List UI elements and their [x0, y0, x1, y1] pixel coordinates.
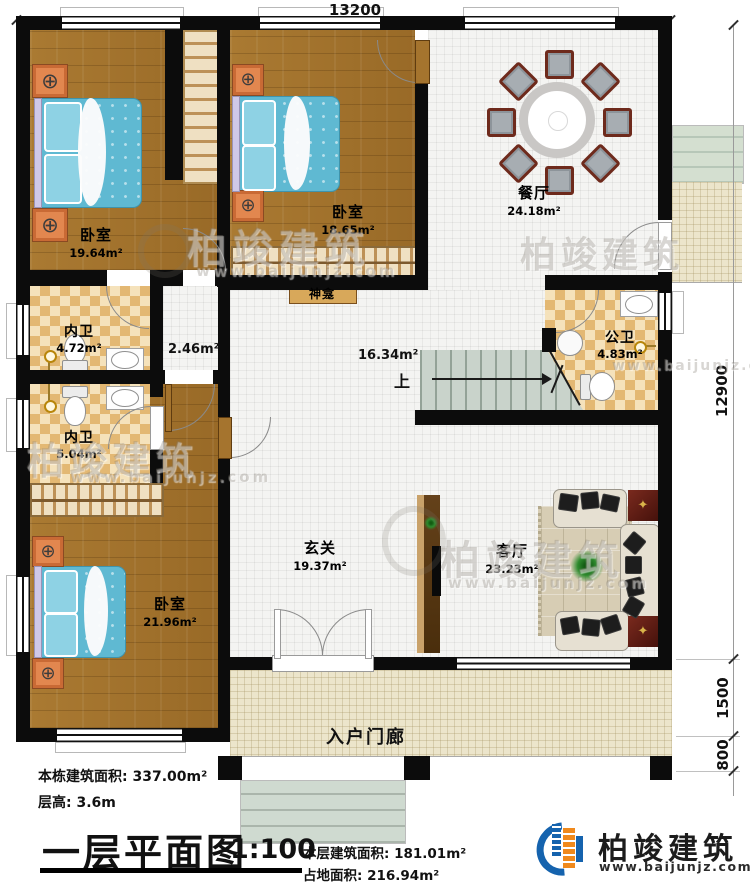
- sink-icon: [625, 295, 653, 314]
- stat-building-area: 本栋建筑面积: 337.00m²: [38, 766, 207, 786]
- corridor-floor: [163, 286, 218, 370]
- sofa-pillow: [600, 493, 621, 512]
- brand-logo-building-icon: [563, 828, 575, 868]
- porch-pillar: [650, 756, 672, 780]
- window: [57, 728, 182, 742]
- wall: [415, 82, 428, 290]
- brand-website: www.baijunjz.com: [599, 859, 750, 874]
- brand-logo-building-icon: [576, 836, 583, 862]
- sofa-pillow: [580, 491, 600, 510]
- wall: [630, 657, 672, 670]
- dimension-right-porch: 1500: [714, 679, 732, 719]
- bed-headboard: [34, 98, 42, 208]
- window-sill: [672, 291, 684, 334]
- dimension-right-main: 12900: [713, 361, 731, 421]
- nightstand: ⊕: [32, 64, 68, 98]
- room-label-ensuite-bath-1: 内卫4.72m²: [29, 323, 129, 356]
- tv-icon: [432, 546, 441, 596]
- stat-floor-height: 层高: 3.6m: [38, 792, 116, 812]
- lamp-icon: ⊕: [240, 197, 255, 215]
- dining-side-door-leaf: [658, 222, 672, 270]
- hall-to-bedroom-3-door-leaf: [218, 417, 232, 459]
- wall: [150, 270, 183, 286]
- wall: [150, 384, 163, 397]
- side-table: ✦: [628, 616, 658, 647]
- wall: [372, 657, 457, 670]
- tv-wall-backing: [417, 495, 424, 653]
- pillow-icon: [44, 154, 82, 204]
- stair-arrow-shaft: [432, 378, 542, 380]
- lamp-icon: ⊕: [40, 665, 55, 683]
- brand-logo-building-icon: [552, 824, 561, 856]
- nightstand: ⊕: [32, 536, 64, 567]
- sofa-pillow: [560, 616, 581, 636]
- room-label-public-bath: 公卫4.83m²: [570, 329, 670, 362]
- plant-icon: [570, 550, 604, 582]
- wall: [180, 16, 260, 30]
- wall: [150, 286, 163, 370]
- chair-icon: [545, 50, 574, 79]
- pillow-icon: [242, 145, 276, 191]
- entry-door-threshold: [272, 655, 374, 672]
- window: [457, 657, 630, 670]
- nightstand: ⊕: [232, 190, 264, 222]
- pillow-icon: [44, 570, 78, 614]
- wall: [16, 448, 30, 577]
- hall-area-label: 16.34m²: [358, 348, 418, 363]
- wall: [542, 328, 556, 352]
- wall: [16, 370, 165, 384]
- closet-bedroom-1: [183, 30, 221, 184]
- wardrobe-bedroom-3: [30, 483, 164, 517]
- nightstand: ⊕: [32, 658, 64, 689]
- bed-headboard: [232, 96, 240, 192]
- room-label-bedroom-3: 卧室21.96m²: [120, 595, 220, 629]
- entry-door-right-leaf: [365, 609, 372, 659]
- chair-icon: [487, 108, 516, 137]
- lamp-icon: ⊕: [41, 71, 59, 92]
- sink-icon: [111, 389, 139, 407]
- window: [465, 16, 615, 30]
- window: [658, 293, 672, 330]
- wall: [165, 30, 183, 180]
- lamp-icon: ⊕: [40, 543, 55, 561]
- bedroom-3-door-leaf: [165, 384, 172, 432]
- wall: [415, 410, 665, 425]
- room-label-foyer: 玄关19.37m²: [270, 539, 370, 573]
- window: [260, 16, 380, 30]
- bedroom-2-door-leaf: [415, 40, 430, 84]
- shrine-label: 神龛: [289, 287, 355, 303]
- room-label-ensuite-bath-2: 内卫5.04m²: [29, 429, 129, 462]
- wall: [218, 287, 230, 417]
- room-label-dining: 餐厅24.18m²: [484, 184, 584, 218]
- star-icon: ✦: [638, 625, 649, 638]
- room-label-living: 客厅23.23m²: [462, 542, 562, 576]
- stat-land-area: 占地面积: 216.94m²: [303, 864, 439, 884]
- wall: [150, 448, 163, 483]
- window: [16, 577, 30, 652]
- lamp-icon: ⊕: [240, 71, 255, 89]
- dining-table-center: [548, 111, 568, 131]
- entry-porch-floor: [230, 670, 672, 757]
- stat-floor-area: 本层建筑面积: 181.01m²: [303, 842, 466, 862]
- pillow-icon: [242, 100, 276, 146]
- stairs-up-label: 上: [394, 368, 410, 392]
- pillow-icon: [44, 613, 78, 657]
- entry-door-left-leaf: [274, 609, 281, 659]
- stair-arrow-head: [542, 373, 552, 385]
- title-underline: [40, 868, 302, 873]
- ensuite-bath-2-door-leaf: [150, 406, 164, 450]
- chair-icon: [603, 108, 632, 137]
- wall: [658, 425, 672, 670]
- wall: [658, 16, 672, 220]
- floor-plan-canvas: 上 神龛: [0, 0, 750, 892]
- window: [16, 305, 30, 355]
- wall: [545, 275, 660, 290]
- bed-headboard: [34, 566, 42, 658]
- toilet-icon: [64, 396, 86, 426]
- dimension-line-right: [733, 26, 734, 796]
- room-label-bedroom-1: 卧室19.64m²: [46, 226, 146, 260]
- plant-icon: [424, 516, 438, 530]
- porch-pillar: [404, 756, 430, 780]
- window: [62, 16, 180, 30]
- toilet-icon: [589, 372, 615, 401]
- side-table: ✦: [628, 490, 658, 521]
- star-icon: ✦: [638, 499, 649, 512]
- porch-pillar: [218, 756, 242, 780]
- wall: [16, 16, 30, 305]
- nightstand: ⊕: [232, 64, 264, 96]
- wall: [658, 272, 672, 293]
- corridor-area-label: 2.46m²: [168, 342, 219, 357]
- wall: [380, 16, 465, 30]
- sofa-pillow: [558, 493, 579, 512]
- room-label-bedroom-2: 卧室18.65m²: [298, 203, 398, 237]
- porch-label: 入户门廊: [326, 723, 406, 749]
- side-porch-floor: [672, 182, 742, 283]
- wall: [16, 728, 57, 742]
- window: [16, 400, 30, 448]
- sofa-pillow: [581, 618, 601, 637]
- wall: [16, 270, 107, 286]
- wall: [213, 370, 230, 384]
- sofa-pillow: [625, 556, 642, 574]
- shower-head-icon: [44, 400, 57, 413]
- window-sill: [55, 742, 186, 753]
- dimension-right-steps: 800: [714, 738, 732, 772]
- pillow-icon: [44, 102, 82, 152]
